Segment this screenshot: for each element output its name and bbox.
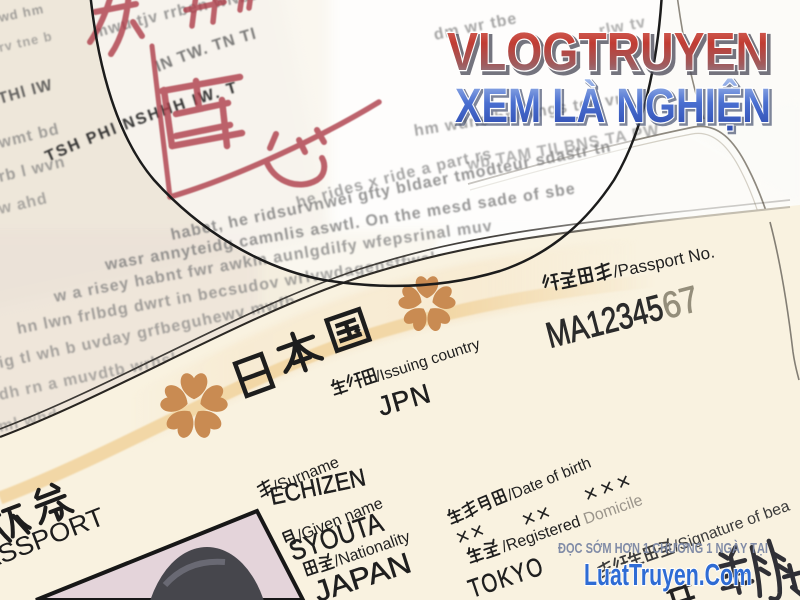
svg-text:VLOGTRUYEN: VLOGTRUYEN — [447, 22, 769, 82]
svg-text:ĐỌC SỚM HƠN 1 CHƯƠNG 1 NGÀY TẠ: ĐỌC SỚM HƠN 1 CHƯƠNG 1 NGÀY TẠI — [558, 539, 768, 557]
svg-text:LuatTruyen.Com: LuatTruyen.Com — [584, 557, 752, 592]
svg-text:XEM LÀ NGHIỆN: XEM LÀ NGHIỆN — [455, 78, 771, 133]
